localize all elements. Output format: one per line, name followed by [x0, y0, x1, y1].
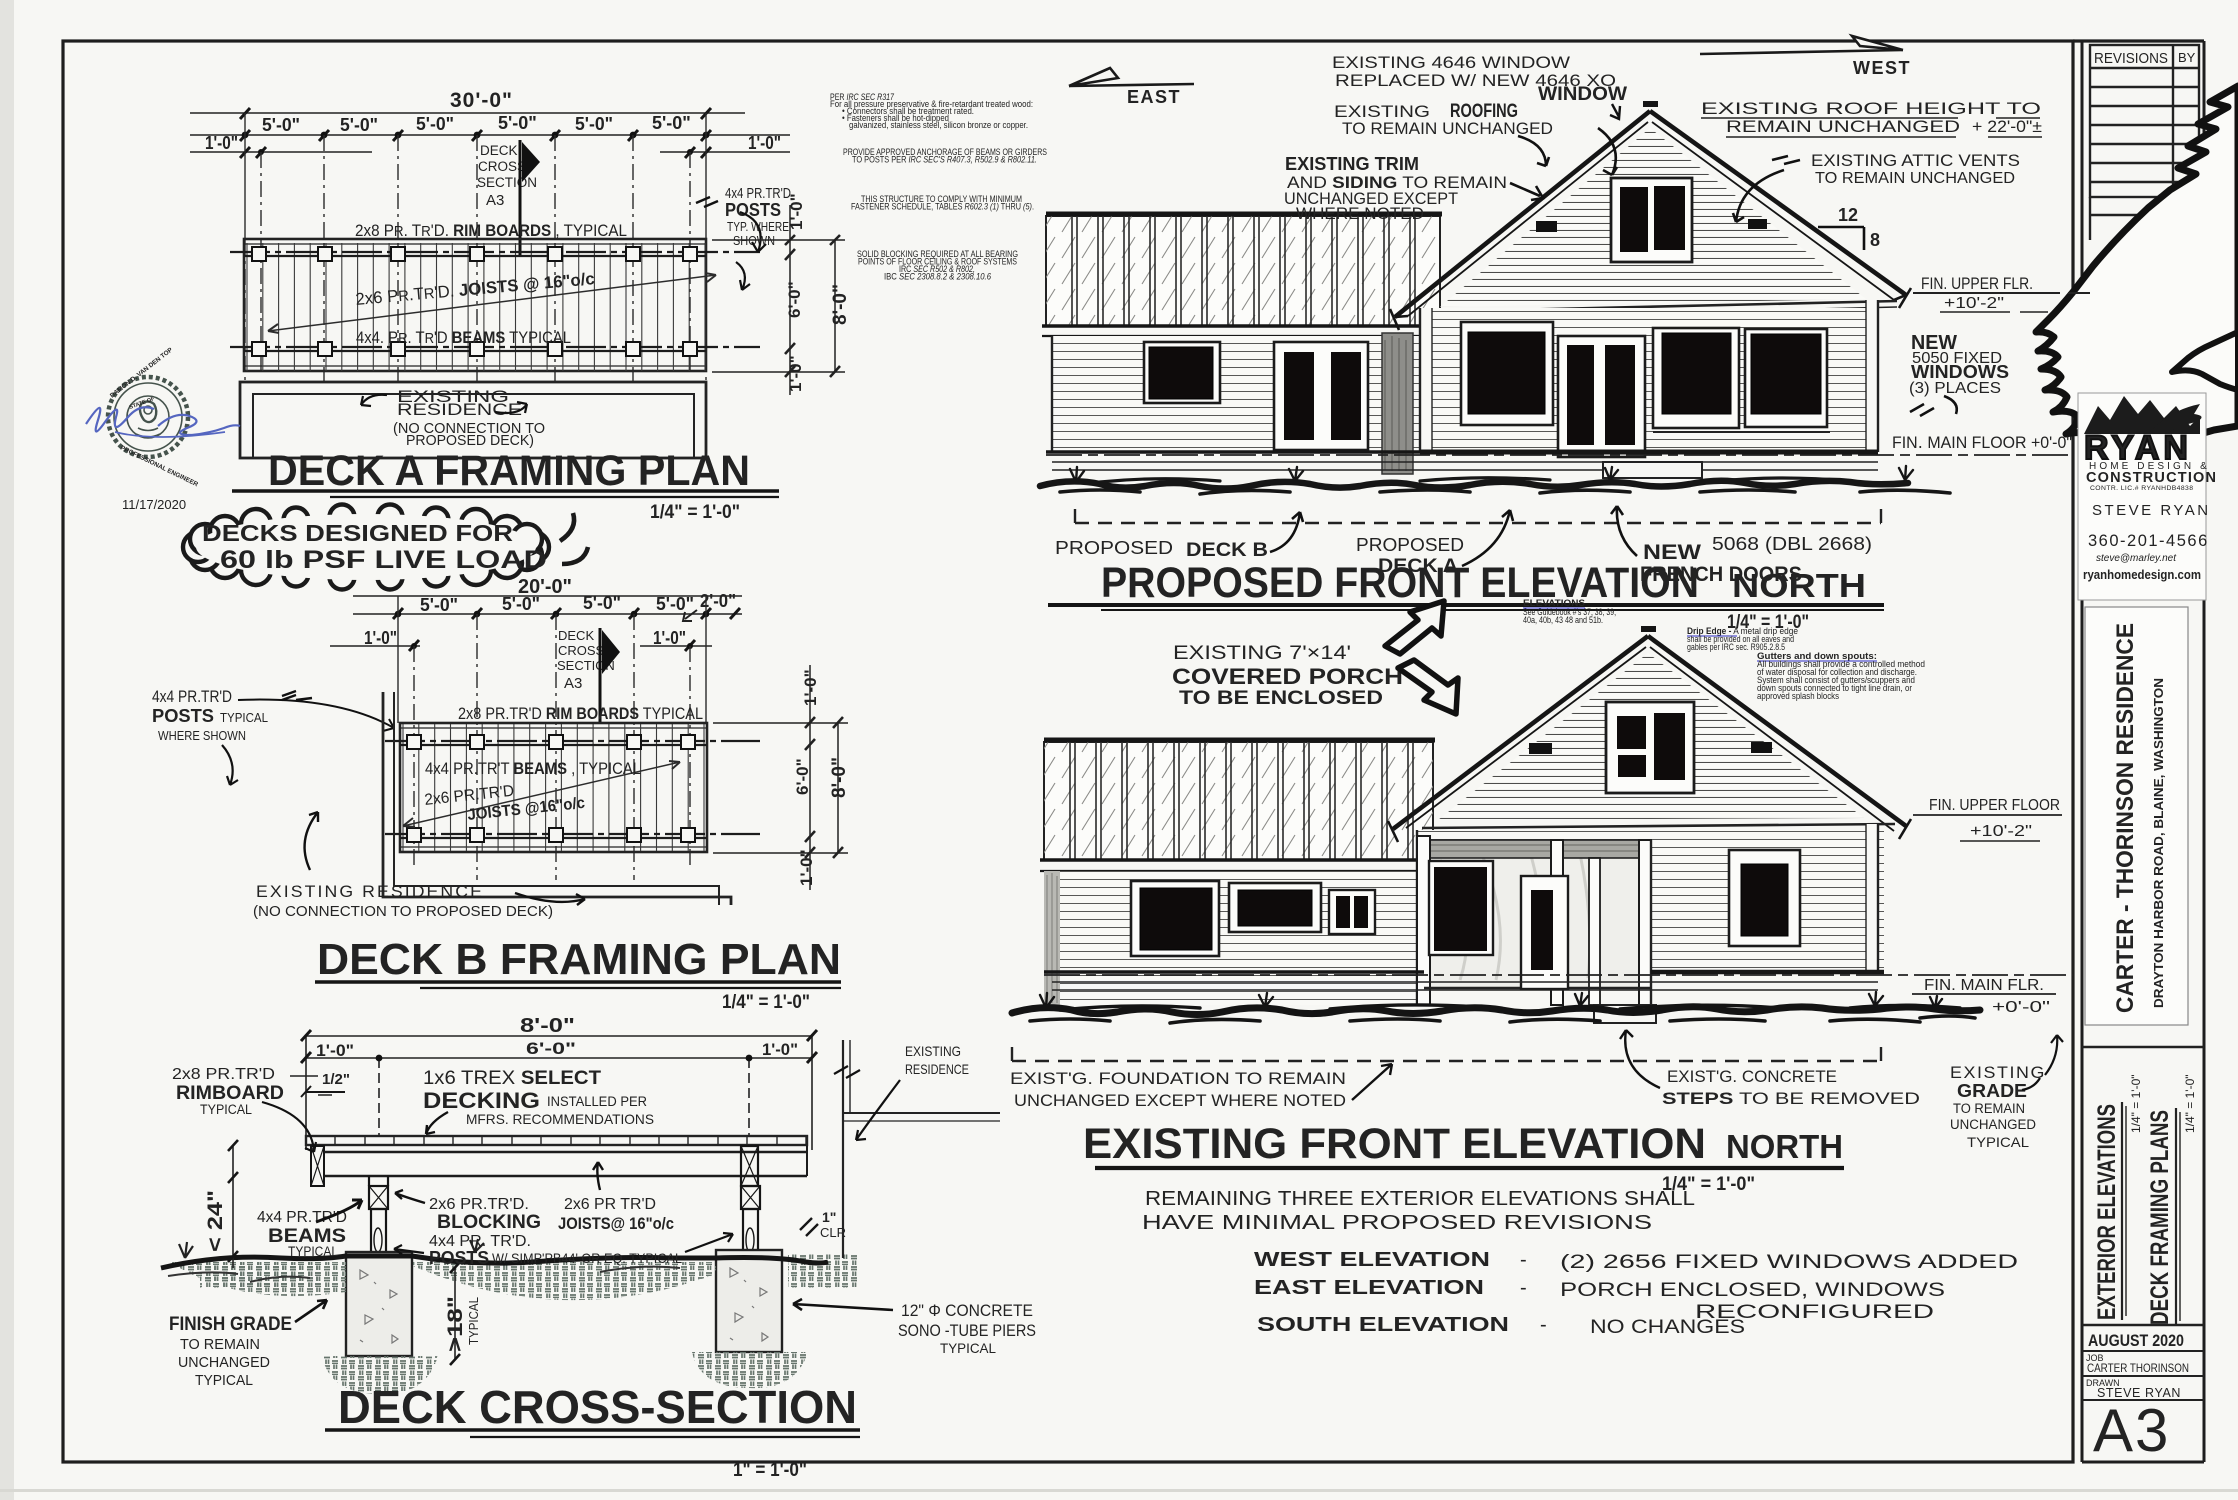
svg-text:6'-0": 6'-0"	[793, 758, 812, 795]
svg-text:UNCHANGED EXCEPT WHERE NOTE: UNCHANGED EXCEPT WHERE NOTED	[1014, 1091, 1346, 1110]
svg-text:+10'-2": +10'-2"	[1970, 823, 2032, 840]
svg-text:2x8 PR.TR'D: 2x8 PR.TR'D	[172, 1066, 275, 1083]
svg-text:1/4" = 1'-0": 1/4" = 1'-0"	[722, 992, 810, 1013]
svg-text:EXISTING ATTIC VENTS: EXISTING ATTIC VENTS	[1811, 151, 2020, 170]
svg-text:+0'-0": +0'-0"	[1992, 999, 2050, 1016]
svg-text:NORTH: NORTH	[1726, 1128, 1843, 1165]
svg-text:-: -	[1540, 1314, 1547, 1336]
svg-text:EXISTING 7'×14': EXISTING 7'×14'	[1173, 643, 1351, 664]
svg-text:(NO CONNECTION TO PROPOSED DEC: (NO CONNECTION TO PROPOSED DECK)	[253, 903, 553, 920]
svg-text:2x8 PR. TR'D. RIM BOARDS , TY: 2x8 PR. TR'D. RIM BOARDS , TYPICAL	[355, 221, 627, 240]
svg-text:+10'-2": +10'-2"	[1944, 295, 2004, 312]
svg-text:1" = 1'-0": 1" = 1'-0"	[733, 1460, 807, 1481]
svg-text:UNCHANGED: UNCHANGED	[178, 1354, 270, 1371]
svg-text:5'-0": 5'-0"	[656, 594, 694, 614]
svg-text:PROPOSED: PROPOSED	[1055, 538, 1173, 558]
svg-text:TYPICAL: TYPICAL	[195, 1372, 253, 1389]
svg-text:FIN. MAIN FLR.: FIN. MAIN FLR.	[1924, 977, 2044, 994]
svg-text:EXISTING: EXISTING	[905, 1043, 961, 1059]
svg-text:TYPICAL: TYPICAL	[288, 1244, 338, 1259]
svg-text:MFRS. RECOMMENDATIONS: MFRS. RECOMMENDATIONS	[466, 1111, 654, 1127]
svg-text:1": 1"	[822, 1209, 836, 1225]
svg-text:1'-0": 1'-0"	[786, 355, 805, 392]
svg-text:UNCHANGED: UNCHANGED	[1950, 1117, 2036, 1132]
svg-text:5'-0": 5'-0"	[583, 593, 621, 613]
svg-text:TO REMAIN UNCHANGED: TO REMAIN UNCHANGED	[1342, 119, 1553, 138]
svg-text:5'-0": 5'-0"	[502, 594, 540, 614]
svg-text:HAVE MINIMAL PROPOSED REVIS: HAVE MINIMAL PROPOSED REVISIONS	[1142, 1212, 1652, 1234]
svg-text:TO REMAIN UNCHANGED: TO REMAIN UNCHANGED	[1815, 170, 2015, 187]
svg-text:WHERE NOTED: WHERE NOTED	[1296, 204, 1424, 223]
svg-text:5'-0": 5'-0"	[498, 113, 537, 133]
svg-text:2x6 PR TR'D: 2x6 PR TR'D	[564, 1196, 656, 1213]
svg-text:5068 (DBL 2668): 5068 (DBL 2668)	[1712, 534, 1872, 554]
svg-text:1'-0": 1'-0"	[797, 849, 816, 886]
svg-text:8'-0": 8'-0"	[829, 757, 850, 798]
svg-text:AUGUST 2020: AUGUST 2020	[2088, 1332, 2184, 1350]
svg-text:8'-0": 8'-0"	[520, 1015, 575, 1037]
svg-text:WEST ELEVATION: WEST ELEVATION	[1254, 1249, 1490, 1271]
svg-text:5'-0": 5'-0"	[262, 115, 300, 135]
svg-text:30'-0": 30'-0"	[450, 89, 513, 112]
svg-text:-: -	[1520, 1277, 1527, 1299]
svg-text:1'-0": 1'-0"	[762, 1040, 798, 1059]
svg-text:IBC SEC 2308.8.2 & 2308.10.6: IBC SEC 2308.8.2 & 2308.10.6	[884, 272, 992, 283]
svg-text:EXISTING TRIM: EXISTING TRIM	[1285, 154, 1419, 174]
svg-text:NORTH: NORTH	[1732, 567, 1866, 604]
svg-text:REVISIONS: REVISIONS	[2094, 50, 2168, 67]
svg-text:WINDOWS: WINDOWS	[1911, 362, 2009, 382]
svg-text:PORCH ENCLOSED, WINDOWS: PORCH ENCLOSED, WINDOWS	[1560, 1280, 1945, 1301]
svg-text:EXISTING RESIDENCE: EXISTING RESIDENCE	[256, 882, 484, 901]
svg-text:8'-0": 8'-0"	[830, 284, 851, 325]
svg-text:8: 8	[1870, 230, 1880, 250]
svg-text:W/ SIMP'PB44' OR EQ. TYPICAL: W/ SIMP'PB44' OR EQ. TYPICAL	[492, 1250, 682, 1266]
svg-text:4x4. PR. TR'D BEAMS TYPICAL: 4x4. PR. TR'D BEAMS TYPICAL	[356, 328, 571, 347]
svg-text:FINISH GRADE: FINISH GRADE	[169, 1314, 292, 1335]
svg-text:DECK A FRAMING PLAN: DECK A FRAMING PLAN	[268, 447, 750, 495]
svg-text:TYPICAL: TYPICAL	[466, 1297, 481, 1345]
svg-text:+ 22'-0"±: + 22'-0"±	[1972, 117, 2042, 136]
svg-text:5'-0": 5'-0"	[420, 595, 458, 615]
svg-text:1'-0": 1'-0"	[205, 133, 238, 153]
svg-text:RESIDENCE: RESIDENCE	[905, 1061, 969, 1077]
svg-text:DECKING: DECKING	[423, 1088, 540, 1113]
svg-text:360-201-4566: 360-201-4566	[2088, 532, 2209, 550]
svg-text:REMAINING THREE EXTERIOR EL: REMAINING THREE EXTERIOR ELEVATIONS SHAL…	[1145, 1188, 1695, 1210]
svg-text:EAST ELEVATION: EAST ELEVATION	[1254, 1277, 1484, 1299]
svg-text:NO CHANGES: NO CHANGES	[1590, 1317, 1745, 1338]
svg-text:1/4" = 1'-0": 1/4" = 1'-0"	[650, 502, 740, 523]
svg-text:TO REMAIN: TO REMAIN	[1953, 1101, 2025, 1116]
svg-text:SONO -TUBE PIERS: SONO -TUBE PIERS	[898, 1321, 1036, 1340]
svg-text:TYPICAL: TYPICAL	[220, 710, 268, 725]
svg-text:WHERE SHOWN: WHERE SHOWN	[158, 728, 246, 743]
svg-text:DECK: DECK	[558, 628, 594, 643]
svg-text:6'-0": 6'-0"	[785, 281, 804, 318]
svg-text:A3: A3	[486, 192, 504, 209]
svg-text:POSTS: POSTS	[152, 706, 214, 726]
svg-text:DECK: DECK	[480, 143, 518, 158]
svg-text:ryanhomedesign.com: ryanhomedesign.com	[2083, 568, 2201, 582]
svg-text:5'-0": 5'-0"	[575, 114, 613, 134]
svg-text:2x8 PR.TR'D RIM BOARDS TYPICAL: 2x8 PR.TR'D RIM BOARDS TYPICAL	[458, 704, 703, 723]
svg-text:POSTS: POSTS	[429, 1248, 489, 1268]
svg-text:60 lb PSF LIVE LOAD: 60 lb PSF LIVE LOAD	[220, 546, 547, 574]
svg-text:CARTER - THORINSON RESIDENCE: CARTER - THORINSON RESIDENCE	[2112, 623, 2139, 1013]
svg-text:FIN․ MAIN FLOOR +0'-0": FIN․ MAIN FLOOR +0'-0"	[1892, 433, 2072, 452]
svg-text:REMAIN UNCHANGED: REMAIN UNCHANGED	[1726, 117, 1960, 136]
svg-text:FIN. UPPER FLR.: FIN. UPPER FLR.	[1921, 274, 2033, 293]
svg-text:1/4" = 1'-0": 1/4" = 1'-0"	[2129, 1074, 2143, 1133]
svg-text:1'-0": 1'-0"	[748, 133, 781, 153]
svg-text:GRADE: GRADE	[1957, 1081, 2027, 1101]
svg-text:11/17/2020: 11/17/2020	[122, 497, 186, 512]
svg-text:A3: A3	[2093, 1397, 2170, 1464]
svg-text:< 24": < 24"	[204, 1190, 227, 1252]
svg-text:1'-0": 1'-0"	[364, 628, 397, 648]
svg-text:EXIST'G. FOUNDATION TO REMAIN: EXIST'G. FOUNDATION TO REMAIN	[1010, 1069, 1346, 1088]
svg-text:JOISTS@ 16"o/c: JOISTS@ 16"o/c	[558, 1214, 674, 1233]
svg-text:RESIDENCE: RESIDENCE	[397, 400, 522, 419]
svg-text:POSTS: POSTS	[725, 200, 781, 220]
svg-text:6'-0": 6'-0"	[526, 1039, 576, 1058]
svg-text:40a, 40b, 43 48 and 51b.: 40a, 40b, 43 48 and 51b.	[1523, 615, 1603, 626]
svg-text:(3) PLACES: (3) PLACES	[1909, 380, 2001, 397]
svg-text:A3: A3	[564, 675, 582, 692]
svg-text:CONTR. LIC.# RYANHDB4838: CONTR. LIC.# RYANHDB4838	[2090, 485, 2193, 492]
svg-text:TO REMAIN: TO REMAIN	[180, 1336, 260, 1353]
svg-text:CONSTRUCTION: CONSTRUCTION	[2086, 470, 2217, 486]
svg-text:STEPS TO BE REMOVED: STEPS TO BE REMOVED	[1662, 1089, 1920, 1108]
svg-text:5'-0": 5'-0"	[416, 114, 454, 134]
svg-text:4x4 PR.TR'T BEAMS , TYPICAL: 4x4 PR.TR'T BEAMS , TYPICAL	[425, 759, 641, 778]
svg-text:PROPOSED FRONT ELEVATION: PROPOSED FRONT ELEVATION	[1101, 559, 1699, 607]
svg-text:1/4" = 1'-0": 1/4" = 1'-0"	[2183, 1074, 2197, 1133]
svg-text:steve@marley.net: steve@marley.net	[2096, 553, 2177, 564]
svg-text:CARTER THORINSON: CARTER THORINSON	[2087, 1361, 2189, 1375]
svg-text:EAST: EAST	[1127, 87, 1181, 107]
svg-text:BLOCKING: BLOCKING	[437, 1212, 541, 1233]
svg-text:-: -	[1520, 1249, 1527, 1271]
svg-text:EXTERIOR ELEVATIONS: EXTERIOR ELEVATIONS	[2093, 1104, 2121, 1320]
svg-text:DECK CROSS-SECTION: DECK CROSS-SECTION	[338, 1381, 857, 1433]
svg-text:12: 12	[1838, 205, 1858, 225]
svg-text:EXIST'G. CONCRETE: EXIST'G. CONCRETE	[1667, 1067, 1837, 1086]
svg-text:WEST: WEST	[1853, 58, 1911, 78]
svg-text:1'-0": 1'-0"	[787, 193, 806, 230]
svg-text:approved splash blocks: approved splash blocks	[1757, 691, 1839, 702]
svg-text:DECK FRAMING PLANS: DECK FRAMING PLANS	[2146, 1110, 2174, 1325]
svg-text:TYPICAL: TYPICAL	[940, 1340, 996, 1356]
svg-text:DRAYTON HARBOR ROAD, BLAINE,: DRAYTON HARBOR ROAD, BLAINE, WASHINGTON	[2152, 678, 2166, 1008]
svg-text:>18": >18"	[444, 1296, 467, 1352]
svg-text:galvanized, stainless steel, s: galvanized, stainless steel, silicon bro…	[849, 120, 1028, 131]
svg-text:SOUTH ELEVATION: SOUTH ELEVATION	[1257, 1314, 1509, 1336]
svg-text:STEVE RYAN: STEVE RYAN	[2092, 502, 2211, 519]
svg-text:INSTALLED PER: INSTALLED PER	[547, 1093, 647, 1109]
svg-text:TYPICAL: TYPICAL	[1967, 1134, 2029, 1150]
svg-text:5'-0": 5'-0"	[652, 113, 691, 133]
svg-text:1x6 TREX SELECT: 1x6 TREX SELECT	[423, 1068, 601, 1089]
svg-text:4x4 PR.TR'D: 4x4 PR.TR'D	[152, 687, 232, 706]
svg-text:BY: BY	[2178, 50, 2196, 65]
svg-text:DECK B: DECK B	[1186, 540, 1268, 561]
svg-text:2x6 PR.TR'D.: 2x6 PR.TR'D.	[429, 1196, 529, 1213]
svg-text:TO POSTS PER IRC SEC'S R407.3,: TO POSTS PER IRC SEC'S R407.3, R502.9 & …	[852, 155, 1037, 166]
svg-text:1/2": 1/2"	[322, 1071, 350, 1088]
svg-text:5'-0": 5'-0"	[340, 115, 378, 135]
svg-text:EXISTING 4646 WINDOW: EXISTING 4646 WINDOW	[1332, 53, 1570, 72]
svg-text:FIN. UPPER FLOOR: FIN. UPPER FLOOR	[1929, 797, 2060, 814]
svg-text:1'-0": 1'-0"	[316, 1041, 354, 1060]
svg-text:EXISTING: EXISTING	[1950, 1063, 2046, 1082]
svg-text:EXISTING FRONT ELEVATION: EXISTING FRONT ELEVATION	[1083, 1120, 1706, 1168]
svg-text:COVERED PORCH: COVERED PORCH	[1172, 664, 1403, 689]
svg-text:SECTION: SECTION	[477, 175, 537, 190]
svg-text:FASTENER SCHEDULE, TABLES R602: FASTENER SCHEDULE, TABLES R602.3 (1) THR…	[851, 202, 1034, 213]
svg-text:DECK B FRAMING PLAN: DECK B FRAMING PLAN	[317, 935, 841, 984]
svg-text:RIMBOARD: RIMBOARD	[176, 1083, 284, 1104]
svg-text:1'-0": 1'-0"	[801, 669, 820, 706]
svg-text:PROPOSED: PROPOSED	[1356, 535, 1464, 555]
svg-text:WINDOW: WINDOW	[1538, 84, 1627, 105]
svg-text:12" Φ CONCRETE: 12" Φ CONCRETE	[901, 1301, 1033, 1320]
svg-text:TO BE ENCLOSED: TO BE ENCLOSED	[1179, 688, 1383, 709]
svg-text:DECKS DESIGNED FOR: DECKS DESIGNED FOR	[202, 520, 513, 546]
svg-text:1'-0": 1'-0"	[653, 628, 686, 648]
svg-text:4x4 PR.TR'D: 4x4 PR.TR'D	[257, 1209, 347, 1226]
svg-text:EXISTING ROOF HEIGHT TO: EXISTING ROOF HEIGHT TO	[1701, 99, 2041, 118]
svg-text:TYPICAL: TYPICAL	[200, 1102, 252, 1117]
svg-text:(2) 2656 FIXED WINDOWS ADDED: (2) 2656 FIXED WINDOWS ADDED	[1560, 1252, 2018, 1273]
